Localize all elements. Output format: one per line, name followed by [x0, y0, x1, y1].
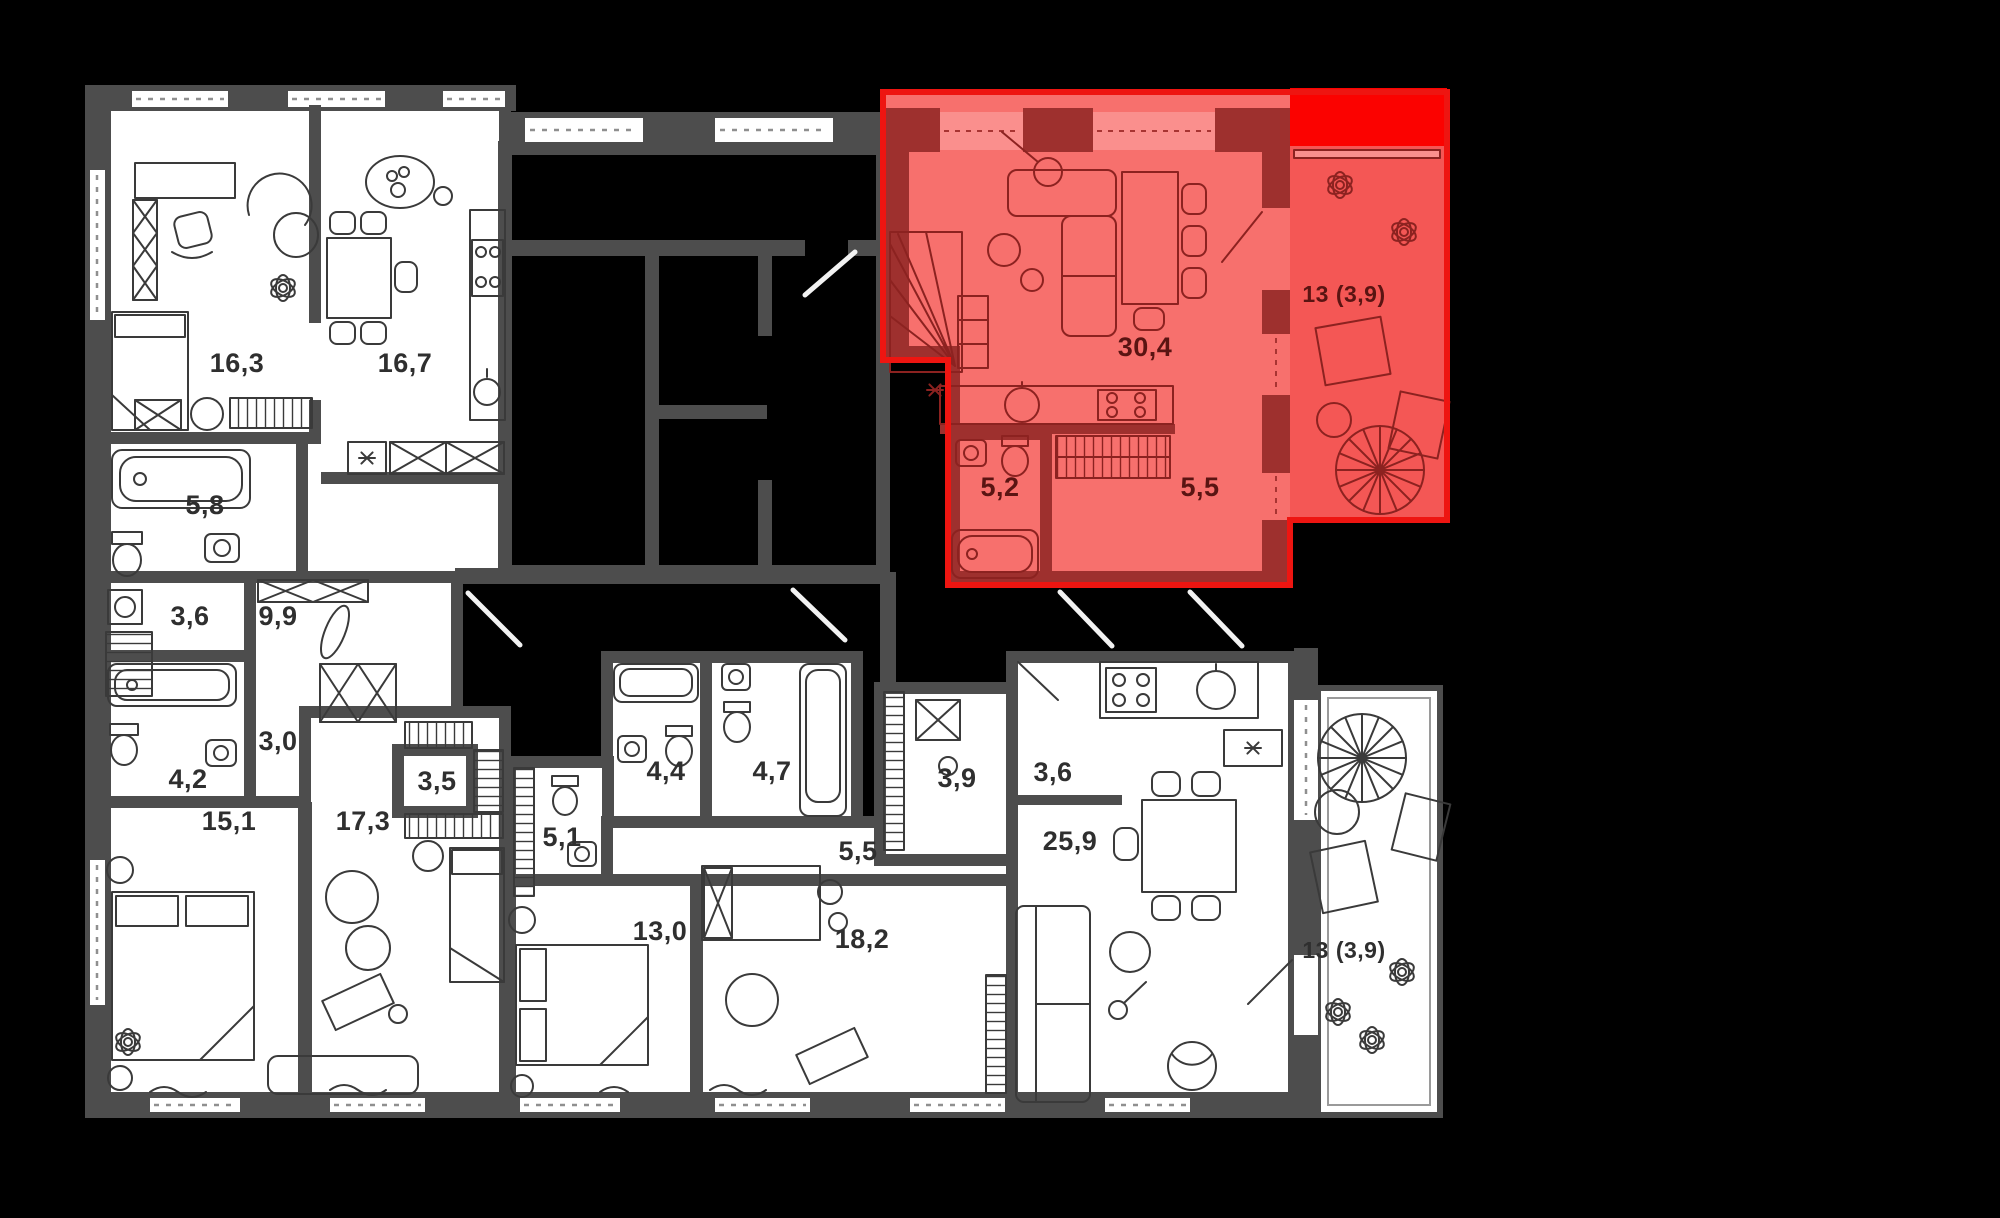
room-label: 3,9 [937, 763, 976, 793]
room-label: 3,0 [258, 726, 297, 756]
room-label: 4,2 [168, 764, 207, 794]
highlight-terrace-top-strip [1290, 88, 1447, 146]
window-icon [520, 1098, 620, 1112]
stairs-icon [884, 692, 904, 850]
highlight-wall [883, 108, 909, 360]
highlighted-apartment[interactable]: 30,4 5,2 5,5 13 (3,9) [883, 88, 1449, 585]
spiral-stair-icon [1336, 426, 1424, 514]
room-label: 5,1 [542, 822, 581, 852]
room-block-13-0 [510, 880, 697, 1102]
room-label: 9,9 [258, 601, 297, 631]
room-label: 16,7 [378, 348, 433, 378]
room-label: 25,9 [1043, 826, 1098, 856]
floor-plan-svg: 30,4 5,2 5,5 13 (3,9) 16,3 16,7 5,8 3,6 … [0, 0, 2000, 1218]
floor-plan-stage: 30,4 5,2 5,5 13 (3,9) 16,3 16,7 5,8 3,6 … [0, 0, 2000, 1218]
radiator-icon [230, 398, 312, 428]
room-label: 5,8 [185, 490, 224, 520]
stairs-icon [514, 768, 534, 896]
building-core [505, 148, 883, 576]
wardrobe-icon [1056, 436, 1170, 478]
room-label-5-5: 5,5 [1180, 472, 1219, 502]
parasol-icon [1318, 714, 1406, 802]
terrace-railing [1294, 150, 1440, 158]
terrace-bottom-block [1318, 688, 1440, 1115]
room-block-25-9 [1012, 657, 1294, 1102]
room-label-5-2: 5,2 [980, 472, 1019, 502]
room-label: 13 (3,9) [1302, 937, 1385, 963]
room-label: 15,1 [202, 806, 257, 836]
window-icon [132, 91, 228, 107]
room-block-18-2 [697, 880, 1012, 1102]
room-label: 13,0 [633, 916, 688, 946]
room-label: 3,6 [170, 601, 209, 631]
window-icon [288, 91, 385, 107]
room-label: 17,3 [336, 806, 391, 836]
room-label: 4,4 [646, 756, 685, 786]
room-label: 4,7 [752, 756, 791, 786]
wardrobe-icon [986, 975, 1006, 1093]
room-label: 5,5 [838, 836, 877, 866]
room-label: 3,6 [1033, 757, 1072, 787]
room-label-30-4: 30,4 [1118, 332, 1173, 362]
room-label: 18,2 [835, 924, 890, 954]
room-label: 3,5 [417, 766, 456, 796]
room-label-terrace: 13 (3,9) [1302, 281, 1385, 307]
terrace-door-icon [1294, 955, 1318, 1035]
room-label: 16,3 [210, 348, 265, 378]
